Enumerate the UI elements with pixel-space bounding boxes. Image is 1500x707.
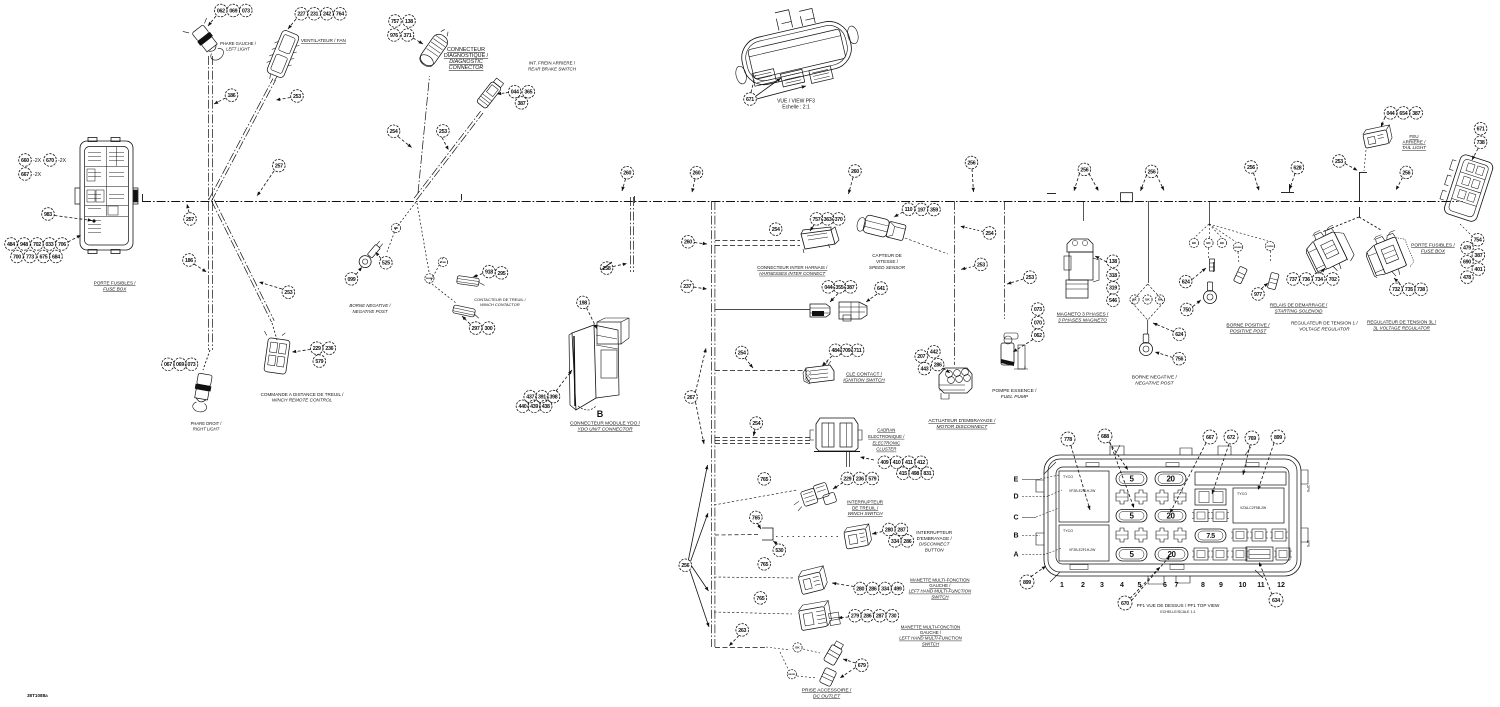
svg-text:VF2B-E2F1H-2W: VF2B-E2F1H-2W — [1069, 489, 1096, 493]
svg-text:110: 110 — [905, 207, 913, 213]
svg-text:256: 256 — [1148, 169, 1156, 175]
svg-text:654: 654 — [1399, 111, 1407, 117]
svg-text:INTERRUPTEUR: INTERRUPTEUR — [916, 530, 953, 535]
svg-text:765: 765 — [760, 562, 768, 568]
svg-text:2: 2 — [1081, 582, 1085, 589]
svg-text:769: 769 — [1248, 436, 1256, 442]
svg-text:260: 260 — [684, 240, 692, 246]
svg-text:267: 267 — [687, 395, 695, 401]
svg-text:258: 258 — [603, 266, 611, 272]
svg-text:DC OUTLET: DC OUTLET — [813, 693, 841, 699]
svg-text:MAGNETO 3 PHASES /: MAGNETO 3 PHASES / — [1057, 312, 1109, 318]
svg-text:236: 236 — [856, 476, 864, 482]
svg-text:GAUCHE /: GAUCHE / — [920, 630, 942, 635]
svg-text:BORNE NEGATIVE /: BORNE NEGATIVE / — [349, 303, 391, 308]
svg-text:TYCO: TYCO — [1063, 529, 1073, 533]
svg-text:COMMANDE A DISTANCE DE TREUIL: COMMANDE A DISTANCE DE TREUIL / — [261, 392, 345, 397]
svg-text:138: 138 — [405, 19, 413, 25]
svg-text:370: 370 — [835, 217, 843, 223]
svg-text:409: 409 — [880, 460, 888, 466]
svg-text:NEGATIVE POST: NEGATIVE POST — [352, 309, 387, 314]
svg-text:186: 186 — [228, 93, 236, 99]
svg-text:073: 073 — [188, 362, 196, 368]
svg-text:688: 688 — [1101, 434, 1109, 440]
svg-text:C: C — [1013, 515, 1018, 522]
svg-text:CONNECTEUR INTER HARNAIS /: CONNECTEUR INTER HARNAIS / — [757, 265, 828, 270]
svg-text:976: 976 — [390, 33, 398, 39]
svg-text:FUSE BOX: FUSE BOX — [103, 286, 127, 291]
svg-text:730: 730 — [888, 614, 896, 620]
svg-text:286: 286 — [869, 586, 877, 592]
svg-text:229: 229 — [313, 346, 321, 352]
svg-text:CLE CONTACT /: CLE CONTACT / — [846, 372, 883, 378]
svg-text:GAUCHE /: GAUCHE / — [929, 583, 951, 588]
svg-text:734: 734 — [1315, 277, 1323, 283]
svg-text:256: 256 — [681, 563, 689, 569]
svg-text:253: 253 — [284, 290, 292, 296]
svg-text:684: 684 — [52, 254, 60, 260]
svg-text:CAPTEUR DE: CAPTEUR DE — [872, 253, 902, 258]
svg-text:WINCH SWITCH: WINCH SWITCH — [848, 511, 884, 516]
svg-text:764: 764 — [336, 12, 344, 18]
svg-text:387: 387 — [518, 101, 526, 107]
svg-text:REGULATEUR DE TENSION 3L /: REGULATEUR DE TENSION 3L / — [1367, 320, 1437, 325]
svg-text:MOTOR DISCONNECT: MOTOR DISCONNECT — [936, 424, 988, 430]
svg-text:670: 670 — [46, 158, 54, 164]
svg-text:WH/BK: WH/BK — [1234, 247, 1242, 249]
svg-text:FUSE BOX: FUSE BOX — [1421, 248, 1446, 254]
svg-text:236: 236 — [325, 346, 333, 352]
svg-text:7: 7 — [1175, 582, 1179, 589]
svg-text:A: A — [1013, 552, 1018, 559]
svg-text:318: 318 — [1109, 273, 1117, 279]
svg-text:MANETTE MULTI-FONCTION: MANETTE MULTI-FONCTION — [910, 578, 969, 583]
svg-text:RELAIS DE DEMARRAGE /: RELAIS DE DEMARRAGE / — [1270, 303, 1328, 308]
svg-text:254: 254 — [986, 231, 994, 237]
svg-text:OR/BK: OR/BK — [1266, 246, 1273, 248]
svg-text:LEFT HAND MULTI-FUNCTION: LEFT HAND MULTI-FUNCTION — [909, 589, 972, 594]
svg-text:LT/BK: LT/BK — [440, 262, 447, 264]
svg-text:286: 286 — [903, 539, 911, 545]
svg-text:671: 671 — [746, 97, 754, 103]
svg-text:256: 256 — [968, 160, 976, 166]
svg-text:260: 260 — [623, 171, 631, 177]
svg-text:099: 099 — [348, 277, 356, 283]
svg-text:257: 257 — [186, 217, 194, 223]
svg-text:359: 359 — [930, 207, 938, 213]
svg-text:5: 5 — [1130, 512, 1135, 521]
svg-text:398: 398 — [550, 394, 558, 400]
svg-text:12: 12 — [1277, 582, 1285, 589]
svg-text:V23A-C2F5B-2W: V23A-C2F5B-2W — [1240, 506, 1267, 510]
svg-text:186: 186 — [185, 258, 193, 264]
svg-text:253: 253 — [439, 129, 447, 135]
svg-text:690: 690 — [1463, 260, 1471, 266]
svg-text:479: 479 — [1463, 246, 1471, 252]
svg-text:287: 287 — [876, 614, 884, 620]
svg-text:PHARE GAUCHE /: PHARE GAUCHE / — [220, 41, 257, 46]
svg-text:711: 711 — [854, 348, 862, 354]
svg-text:20: 20 — [1167, 512, 1176, 521]
svg-text:LEFT HAND MULTI-FUNCTION: LEFT HAND MULTI-FUNCTION — [899, 636, 962, 641]
svg-text:756: 756 — [1175, 357, 1183, 363]
svg-text:VOLTAGE REGULATOR: VOLTAGE REGULATOR — [1299, 326, 1350, 331]
svg-text:254: 254 — [772, 227, 780, 233]
svg-text:334: 334 — [891, 539, 899, 545]
svg-text:237: 237 — [683, 284, 691, 290]
svg-text:778: 778 — [1064, 437, 1072, 443]
svg-text:499: 499 — [894, 586, 902, 592]
svg-text:TYCO: TYCO — [1237, 492, 1247, 496]
svg-text:387: 387 — [1474, 253, 1482, 259]
svg-text:B: B — [1013, 533, 1018, 540]
svg-text:254: 254 — [752, 421, 760, 427]
svg-text:675: 675 — [40, 254, 48, 260]
svg-text:279: 279 — [851, 614, 859, 620]
svg-text:VENTILATEUR / FAN: VENTILATEUR / FAN — [301, 38, 346, 43]
svg-text:672: 672 — [1227, 435, 1235, 441]
svg-text:138: 138 — [1109, 259, 1117, 265]
svg-text:319: 319 — [1109, 286, 1117, 292]
svg-text:BK: BK — [1145, 298, 1150, 302]
svg-text:5: 5 — [1130, 475, 1135, 484]
svg-text:INTERRUPTEUR: INTERRUPTEUR — [847, 500, 884, 505]
svg-text:WINCH REMOTE CONTROL: WINCH REMOTE CONTROL — [272, 398, 333, 403]
svg-text:254: 254 — [738, 350, 746, 356]
svg-text:067: 067 — [164, 362, 172, 368]
svg-text:5: 5 — [1130, 550, 1135, 559]
svg-text:484: 484 — [832, 348, 840, 354]
svg-text:391: 391 — [538, 394, 546, 400]
svg-text:525: 525 — [382, 261, 390, 267]
svg-text:070: 070 — [1034, 320, 1042, 326]
svg-text:DISCONNECT: DISCONNECT — [919, 542, 951, 547]
svg-text:NEGATIVE POST: NEGATIVE POST — [1135, 380, 1174, 386]
svg-text:256: 256 — [1247, 165, 1255, 171]
svg-text:3: 3 — [1100, 582, 1104, 589]
svg-text:355: 355 — [835, 285, 843, 291]
svg-text:732: 732 — [1392, 287, 1400, 293]
svg-text:1: 1 — [1060, 582, 1064, 589]
svg-text:073: 073 — [242, 8, 250, 14]
svg-text:300: 300 — [485, 326, 493, 332]
svg-text:062: 062 — [1034, 333, 1042, 339]
svg-text:069: 069 — [229, 8, 237, 14]
svg-text:PORTE FUSIBLES /: PORTE FUSIBLES / — [94, 281, 137, 286]
svg-text:WH/BK: WH/BK — [426, 278, 434, 280]
svg-text:REAR BRAKE SWITCH: REAR BRAKE SWITCH — [528, 67, 577, 72]
svg-text:REGULATEUR DE TENSION 1 /: REGULATEUR DE TENSION 1 / — [1291, 321, 1358, 326]
svg-text:773: 773 — [26, 254, 34, 260]
svg-text:670: 670 — [1121, 601, 1129, 607]
svg-text:044: 044 — [1387, 111, 1395, 117]
svg-text:BK: BK — [1220, 241, 1225, 245]
svg-text:WINCH CONTACTOR: WINCH CONTACTOR — [480, 302, 520, 307]
svg-text:PF1 VUE DE DESSUS / PF1 TOP VI: PF1 VUE DE DESSUS / PF1 TOP VIEW — [1137, 603, 1220, 608]
svg-text:LEFT LIGHT: LEFT LIGHT — [226, 47, 250, 52]
svg-text:253: 253 — [293, 94, 301, 100]
svg-text:443: 443 — [921, 366, 929, 372]
svg-text:765: 765 — [760, 477, 768, 483]
svg-text:899: 899 — [1274, 435, 1282, 441]
svg-text:280: 280 — [885, 527, 893, 533]
svg-text:-2X: -2X — [33, 172, 42, 178]
svg-text:BK: BK — [1132, 298, 1137, 302]
svg-text:Echelle : 2:1: Echelle : 2:1 — [782, 105, 810, 111]
svg-text:BK: BK — [1206, 241, 1211, 245]
svg-text:B: B — [597, 409, 604, 419]
svg-text:253: 253 — [977, 262, 985, 268]
svg-text:254: 254 — [390, 129, 398, 135]
svg-text:387: 387 — [1412, 111, 1420, 117]
svg-text:CONNECTEUR MODULE YDO /: CONNECTEUR MODULE YDO / — [570, 421, 641, 427]
svg-text:033: 033 — [46, 242, 54, 248]
svg-text:PORTE FUSIBLES /: PORTE FUSIBLES / — [1411, 243, 1455, 249]
svg-text:918: 918 — [485, 269, 493, 275]
svg-text:BK/RD: BK/RD — [788, 674, 795, 676]
svg-text:700: 700 — [13, 254, 21, 260]
svg-text:439: 439 — [530, 404, 538, 410]
svg-text:671: 671 — [1477, 127, 1485, 133]
svg-text:IGNITION SWITCH: IGNITION SWITCH — [843, 377, 885, 383]
svg-text:579: 579 — [315, 359, 323, 365]
svg-text:948: 948 — [20, 242, 28, 248]
svg-text:PRISE ACCESSOIRE /: PRISE ACCESSOIRE / — [802, 688, 852, 694]
svg-text:256: 256 — [1402, 170, 1410, 176]
svg-text:3L VOLTAGE REGULATOR: 3L VOLTAGE REGULATOR — [1373, 325, 1430, 330]
svg-text:RIGHT LIGHT: RIGHT LIGHT — [193, 427, 220, 432]
svg-text:702: 702 — [1329, 277, 1337, 283]
svg-text:CLUSTER: CLUSTER — [876, 447, 896, 452]
svg-text:SWITCH: SWITCH — [922, 641, 940, 646]
svg-text:624: 624 — [1182, 279, 1190, 285]
svg-text:ECHELLE/SCALE 1:1: ECHELLE/SCALE 1:1 — [1160, 610, 1195, 614]
svg-text:198: 198 — [579, 300, 587, 306]
svg-text:411: 411 — [905, 460, 913, 466]
svg-text:295: 295 — [498, 271, 506, 277]
svg-text:484: 484 — [7, 242, 15, 248]
svg-text:PHARE DROIT /: PHARE DROIT / — [191, 421, 223, 426]
svg-text:38T1088a: 38T1088a — [27, 693, 48, 698]
svg-text:069: 069 — [176, 362, 184, 368]
svg-text:899: 899 — [1023, 580, 1031, 586]
svg-text:286: 286 — [863, 614, 871, 620]
svg-text:D'EMBRAYAGE /: D'EMBRAYAGE / — [917, 536, 953, 541]
svg-text:062: 062 — [217, 8, 225, 14]
svg-text:438: 438 — [542, 404, 550, 410]
svg-text:628: 628 — [1293, 165, 1301, 171]
svg-text:253: 253 — [1335, 159, 1343, 165]
svg-text:263: 263 — [738, 628, 746, 634]
svg-text:667: 667 — [21, 172, 29, 178]
svg-text:624: 624 — [1175, 332, 1183, 338]
svg-text:530: 530 — [775, 548, 783, 554]
svg-text:BUTTON: BUTTON — [925, 547, 944, 552]
svg-text:20: 20 — [1167, 475, 1176, 484]
svg-text:757: 757 — [391, 19, 399, 25]
svg-text:371: 371 — [404, 33, 412, 39]
svg-text:754: 754 — [1474, 238, 1482, 244]
svg-text:412: 412 — [917, 460, 925, 466]
svg-text:BORNE POSITIVE /: BORNE POSITIVE / — [1226, 323, 1270, 329]
svg-text:437: 437 — [526, 394, 534, 400]
svg-text:HARNESSES INTER CONNECT: HARNESSES INTER CONNECT — [759, 271, 826, 276]
svg-text:044: 044 — [511, 90, 519, 96]
svg-text:738: 738 — [1417, 287, 1425, 293]
svg-text:579: 579 — [868, 476, 876, 482]
svg-text:738: 738 — [1477, 140, 1485, 146]
svg-text:667: 667 — [1206, 435, 1214, 441]
svg-text:2P0: 2P0 — [1306, 485, 1311, 493]
svg-text:401: 401 — [1474, 267, 1482, 273]
svg-text:702: 702 — [33, 242, 41, 248]
svg-text:MANETTE MULTI-FONCTION: MANETTE MULTI-FONCTION — [901, 625, 960, 630]
svg-text:257: 257 — [275, 163, 283, 169]
svg-text:FUEL PUMP: FUEL PUMP — [1001, 394, 1029, 400]
svg-text:CADRAN: CADRAN — [877, 428, 895, 433]
svg-text:VF2B-E2F1H-2W: VF2B-E2F1H-2W — [1069, 548, 1096, 552]
svg-text:709: 709 — [843, 348, 851, 354]
svg-text:D: D — [1013, 494, 1018, 501]
svg-text:-2X: -2X — [58, 158, 67, 164]
svg-text:BK: BK — [394, 226, 399, 230]
svg-text:ELECTRONIQUE /: ELECTRONIQUE / — [868, 434, 905, 439]
svg-text:DE TREUIL /: DE TREUIL / — [852, 505, 879, 510]
svg-text:TYCO: TYCO — [1063, 475, 1073, 479]
svg-text:VITESSE /: VITESSE / — [876, 259, 899, 264]
svg-text:242: 242 — [323, 12, 331, 18]
svg-text:STARTING SOLENOID: STARTING SOLENOID — [1275, 308, 1323, 313]
svg-text:256: 256 — [1080, 167, 1088, 173]
svg-text:735: 735 — [1405, 287, 1413, 293]
svg-text:YDO UNIT CONNECTOR: YDO UNIT CONNECTOR — [577, 426, 633, 432]
svg-text:-2X: -2X — [33, 158, 42, 164]
svg-text:478: 478 — [1463, 275, 1471, 281]
svg-text:073: 073 — [1034, 307, 1042, 313]
svg-text:FEU: FEU — [1409, 134, 1418, 139]
svg-text:3 PHASES MAGNETO: 3 PHASES MAGNETO — [1058, 317, 1107, 323]
svg-text:286: 286 — [934, 362, 942, 368]
svg-text:BK: BK — [1158, 298, 1163, 302]
svg-text:227: 227 — [297, 12, 305, 18]
svg-text:679: 679 — [858, 663, 866, 669]
svg-text:641: 641 — [877, 286, 885, 292]
svg-text:634: 634 — [1272, 598, 1280, 604]
svg-text:737: 737 — [1289, 277, 1297, 283]
svg-text:INT. FREIN ARRIERE /: INT. FREIN ARRIERE / — [529, 61, 576, 66]
svg-text:363: 363 — [824, 217, 832, 223]
svg-text:ELECTRONIC: ELECTRONIC — [872, 440, 901, 445]
svg-text:ACTUATEUR D'EMBRAYAGE /: ACTUATEUR D'EMBRAYAGE / — [928, 418, 996, 424]
svg-text:546: 546 — [1109, 298, 1117, 304]
svg-text:498: 498 — [911, 471, 919, 477]
svg-text:440: 440 — [519, 404, 527, 410]
svg-text:BK: BK — [1192, 241, 1197, 245]
svg-text:207: 207 — [917, 354, 925, 360]
svg-text:765: 765 — [752, 515, 760, 521]
svg-text:260: 260 — [693, 171, 701, 177]
svg-text:4: 4 — [1120, 582, 1124, 589]
svg-text:7.5: 7.5 — [1206, 533, 1215, 540]
svg-text:POMPE ESSENCE /: POMPE ESSENCE / — [992, 388, 1037, 394]
svg-text:TAIL LIGHT: TAIL LIGHT — [1402, 145, 1427, 150]
svg-text:757: 757 — [813, 217, 821, 223]
svg-text:POSITIVE POST: POSITIVE POST — [1230, 328, 1268, 334]
svg-text:660: 660 — [21, 158, 29, 164]
svg-text:983: 983 — [44, 212, 52, 218]
svg-text:SWITCH: SWITCH — [931, 594, 949, 599]
svg-text:253: 253 — [1026, 275, 1034, 281]
svg-text:SPEED SENSOR: SPEED SENSOR — [869, 265, 906, 270]
svg-text:6: 6 — [1163, 582, 1167, 589]
svg-text:197: 197 — [918, 207, 926, 213]
svg-text:5: 5 — [1138, 582, 1142, 589]
svg-text:750: 750 — [1183, 307, 1191, 313]
svg-text:387: 387 — [847, 285, 855, 291]
svg-text:260: 260 — [851, 169, 859, 175]
svg-text:044: 044 — [824, 285, 832, 291]
svg-text:BK: BK — [795, 645, 800, 649]
svg-text:706: 706 — [58, 242, 66, 248]
svg-text:1P0: 1P0 — [1306, 540, 1311, 548]
svg-text:8: 8 — [1201, 582, 1205, 589]
svg-text:287: 287 — [897, 527, 905, 533]
svg-text:280: 280 — [856, 586, 864, 592]
svg-text:442: 442 — [930, 350, 938, 356]
svg-text:765: 765 — [756, 596, 764, 602]
svg-text:ARRIERE /: ARRIERE / — [1403, 140, 1427, 145]
svg-text:415: 415 — [899, 471, 907, 477]
svg-text:297: 297 — [472, 326, 480, 332]
svg-text:E: E — [1014, 477, 1019, 484]
svg-text:365: 365 — [524, 90, 532, 96]
svg-text:736: 736 — [1302, 277, 1310, 283]
svg-text:11: 11 — [1257, 582, 1265, 589]
svg-text:410: 410 — [893, 460, 901, 466]
svg-text:CONNECTOR: CONNECTOR — [449, 65, 484, 71]
svg-text:231: 231 — [310, 12, 318, 18]
svg-text:10: 10 — [1239, 582, 1247, 589]
svg-text:831: 831 — [923, 471, 931, 477]
svg-text:229: 229 — [843, 476, 851, 482]
svg-text:977: 977 — [1254, 292, 1262, 298]
svg-text:BORNE NEGATIVE /: BORNE NEGATIVE / — [1132, 375, 1178, 381]
svg-text:9: 9 — [1219, 582, 1223, 589]
svg-text:334: 334 — [881, 586, 889, 592]
